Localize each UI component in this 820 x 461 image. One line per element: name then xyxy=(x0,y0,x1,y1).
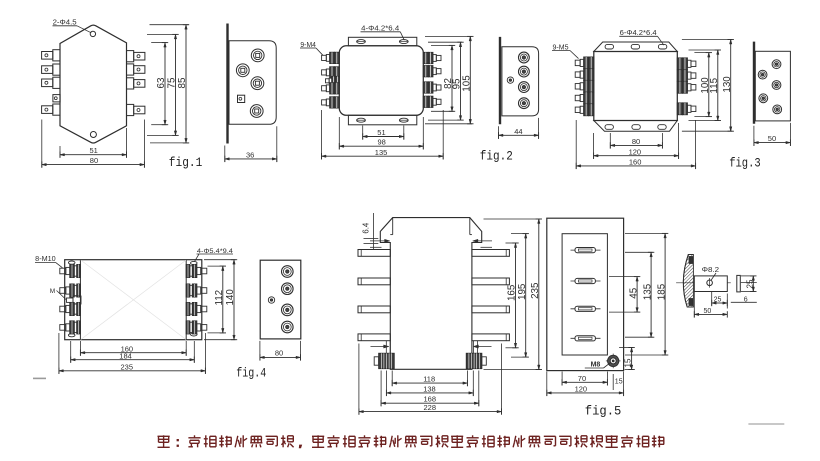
svg-text:2-Φ4.5: 2-Φ4.5 xyxy=(53,18,77,27)
svg-text:112: 112 xyxy=(214,290,225,306)
svg-text:25: 25 xyxy=(745,279,754,288)
svg-text:228: 228 xyxy=(424,403,437,412)
svg-text:fig.3: fig.3 xyxy=(729,156,761,171)
svg-text:130: 130 xyxy=(722,76,733,93)
svg-text:63: 63 xyxy=(156,77,167,88)
svg-text:fig.4: fig.4 xyxy=(236,365,266,380)
svg-text:80: 80 xyxy=(90,156,98,165)
svg-text:15: 15 xyxy=(624,358,633,367)
svg-text:115: 115 xyxy=(709,77,720,93)
svg-text:195: 195 xyxy=(517,283,528,300)
svg-text:120: 120 xyxy=(629,147,642,156)
svg-text:85: 85 xyxy=(177,77,188,88)
svg-text:50: 50 xyxy=(704,308,712,315)
svg-text:51: 51 xyxy=(90,146,98,155)
svg-text:80: 80 xyxy=(275,349,283,358)
svg-text:M: M xyxy=(50,288,55,295)
svg-text:36: 36 xyxy=(246,150,254,159)
svg-text:235: 235 xyxy=(530,282,541,299)
svg-text:70: 70 xyxy=(578,374,586,383)
svg-text:80: 80 xyxy=(632,137,640,146)
svg-text:75: 75 xyxy=(167,77,178,88)
svg-text:fig.1: fig.1 xyxy=(169,155,203,170)
svg-text:160: 160 xyxy=(629,158,642,167)
svg-text:Φ8.2: Φ8.2 xyxy=(702,265,720,274)
svg-text:M8: M8 xyxy=(591,362,601,369)
svg-text:135: 135 xyxy=(642,283,653,300)
svg-text:138: 138 xyxy=(423,384,436,393)
svg-text:185: 185 xyxy=(656,283,667,300)
svg-text:25: 25 xyxy=(714,297,722,304)
svg-text:135: 135 xyxy=(375,148,388,157)
svg-text:98: 98 xyxy=(378,138,386,147)
svg-text:118: 118 xyxy=(423,375,435,384)
svg-text:140: 140 xyxy=(225,289,236,306)
svg-text:184: 184 xyxy=(119,351,132,360)
svg-text:6.4: 6.4 xyxy=(362,222,371,234)
svg-text:44: 44 xyxy=(514,127,522,136)
svg-text:235: 235 xyxy=(121,362,134,371)
svg-text:51: 51 xyxy=(377,128,385,137)
svg-text:50: 50 xyxy=(768,134,776,143)
svg-text:6: 6 xyxy=(744,296,748,303)
svg-text:15: 15 xyxy=(615,379,623,386)
svg-text:120: 120 xyxy=(575,385,588,394)
svg-text:fig.2: fig.2 xyxy=(480,149,513,164)
svg-text:105: 105 xyxy=(462,75,473,92)
svg-text:45: 45 xyxy=(628,287,639,298)
svg-text:fig.5: fig.5 xyxy=(585,404,622,419)
